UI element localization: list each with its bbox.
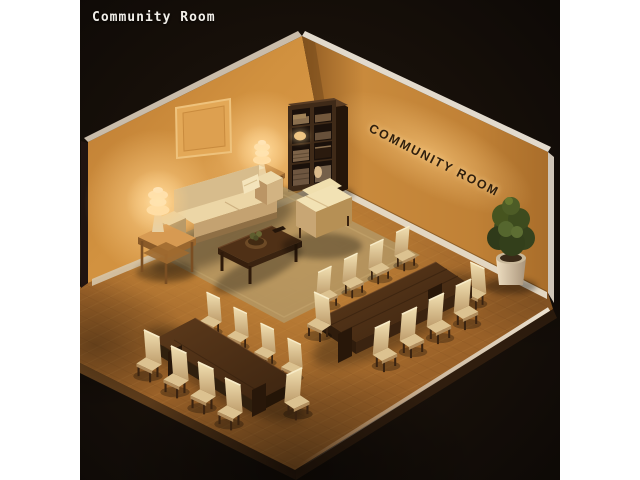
wall-edge-trim (548, 152, 554, 303)
isometric-room-render: COMMUNITY ROOM COMMUNITY ROOM (80, 0, 560, 480)
lamp-halo (126, 169, 190, 233)
screenshot-canvas: COMMUNITY ROOM COMMUNITY ROOM (0, 0, 640, 480)
table-lamp (126, 169, 190, 233)
wall-picture (176, 99, 231, 158)
render-area: COMMUNITY ROOM COMMUNITY ROOM (80, 0, 560, 480)
lamp-halo (236, 125, 288, 177)
scene-title: Community Room (92, 10, 216, 25)
